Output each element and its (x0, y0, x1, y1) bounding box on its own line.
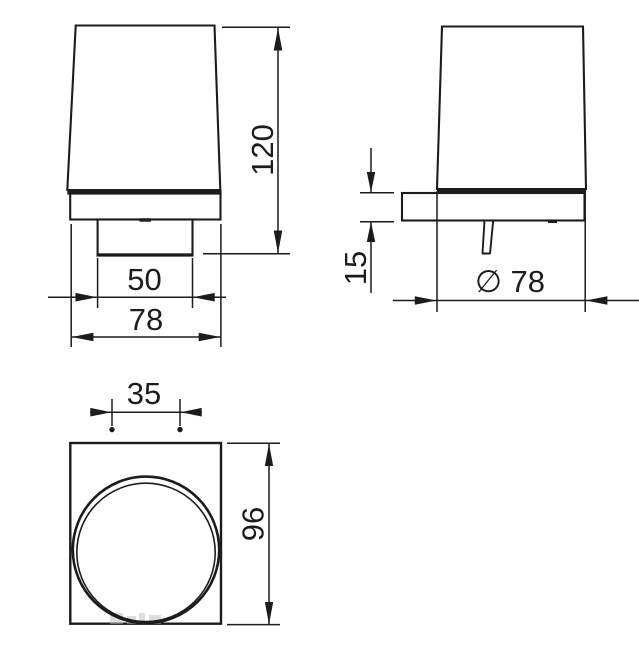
dim-35-arrow-left (90, 408, 111, 417)
side-setscrew-mark (548, 220, 557, 223)
dim-96-arrow-up (265, 444, 273, 466)
dim-15-arrow-down (367, 172, 375, 192)
dim-50-arrow-right (193, 293, 215, 302)
side-cup-outline (437, 27, 586, 190)
dim-78-label: 78 (129, 302, 163, 337)
technical-drawing-canvas: 120 50 78 15 ∅ 78 (0, 0, 639, 662)
front-view: 120 50 78 (48, 26, 290, 348)
side-fixing-pin (483, 221, 494, 254)
dim-15-arrow-up (367, 222, 375, 242)
side-mounting-plate (402, 193, 585, 221)
dim-dia78-label: ∅ 78 (475, 264, 545, 299)
dim-96-arrow-down (265, 602, 273, 624)
side-view: 15 ∅ 78 (338, 27, 639, 313)
dim-50-arrow-left (76, 293, 98, 302)
dim-15-label: 15 (338, 251, 373, 285)
dim-dia78-arrow-right (586, 296, 608, 305)
dim-50-label: 50 (127, 262, 161, 297)
side-holder-rim-band (437, 188, 586, 193)
top-hole-dot-right (177, 427, 182, 432)
drawing-svg: 120 50 78 15 ∅ 78 (0, 0, 639, 662)
front-wall-bracket (98, 220, 193, 255)
dim-78-arrow-right (199, 333, 221, 342)
dim-78-arrow-left (72, 333, 94, 342)
top-hole-dot-left (109, 427, 114, 432)
top-view: 35 96 (70, 376, 280, 625)
dim-120-arrow-down (274, 231, 283, 254)
dim-dia78-arrow-left (415, 296, 437, 305)
front-holder-rim-band (67, 189, 221, 195)
dim-96-label: 96 (236, 507, 271, 541)
front-cup-outline (67, 26, 220, 191)
dim-120-arrow-up (274, 28, 283, 51)
dim-35-label: 35 (127, 376, 161, 411)
front-notch-mark (140, 218, 152, 221)
dim-120-label: 120 (245, 124, 280, 176)
dim-35-arrow-right (181, 408, 202, 417)
front-holder-ring (70, 191, 220, 220)
